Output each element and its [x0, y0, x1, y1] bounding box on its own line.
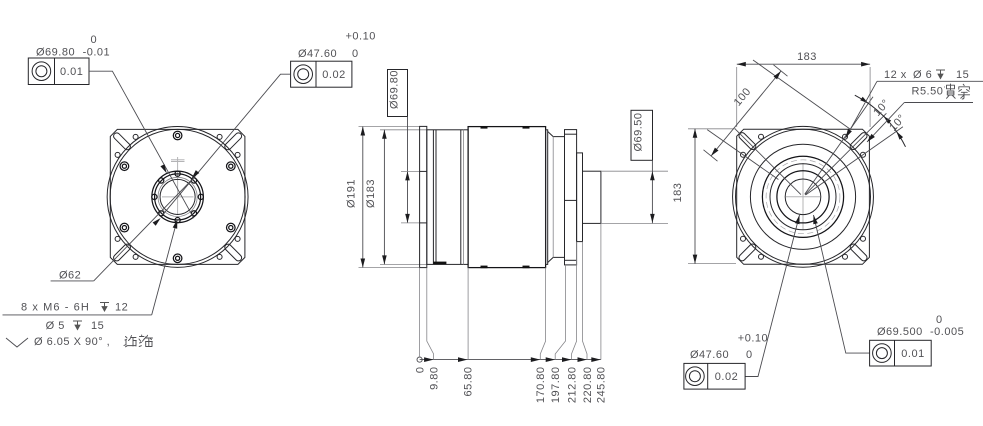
svg-text:0.01: 0.01	[60, 66, 83, 78]
svg-text:+0.10: +0.10	[346, 31, 376, 43]
svg-text:183: 183	[672, 183, 684, 203]
svg-text:Ø 6: Ø 6	[913, 69, 932, 81]
svg-text:8 x M6 - 6H: 8 x M6 - 6H	[21, 302, 90, 314]
svg-text:0.02: 0.02	[715, 371, 738, 383]
svg-text:220.80: 220.80	[582, 367, 594, 404]
svg-text:Ø69.80: Ø69.80	[36, 47, 75, 59]
svg-text:Ø69.500: Ø69.500	[877, 326, 923, 338]
svg-text:+0.10: +0.10	[738, 332, 768, 344]
svg-text:0: 0	[746, 349, 753, 361]
svg-text:Ø191: Ø191	[346, 179, 358, 208]
svg-text:R5.50: R5.50	[912, 86, 944, 98]
svg-text:15: 15	[91, 320, 104, 332]
svg-text:170.80: 170.80	[535, 367, 547, 404]
svg-text:197.80: 197.80	[550, 367, 562, 404]
svg-text:212.80: 212.80	[566, 367, 578, 404]
svg-text:245.80: 245.80	[596, 367, 608, 404]
svg-text:0: 0	[414, 367, 426, 374]
svg-text:0.02: 0.02	[322, 69, 345, 81]
svg-text:Ø62: Ø62	[59, 269, 81, 281]
svg-text:Ø47.60: Ø47.60	[690, 349, 729, 361]
svg-text:-0.01: -0.01	[83, 47, 111, 59]
svg-text:Ø69.80: Ø69.80	[389, 70, 401, 109]
svg-text:15: 15	[956, 69, 969, 81]
svg-text:-0.005: -0.005	[930, 326, 964, 338]
svg-text:0: 0	[352, 48, 359, 60]
svg-text:12 x: 12 x	[884, 69, 907, 81]
svg-text:Ø 5: Ø 5	[46, 320, 65, 332]
svg-text:Ø 6.05 X 90° ,: Ø 6.05 X 90° ,	[34, 336, 110, 348]
svg-text:0: 0	[936, 314, 943, 326]
svg-text:0: 0	[91, 34, 98, 46]
svg-text:65.80: 65.80	[462, 367, 474, 397]
svg-text:9.80: 9.80	[428, 367, 440, 390]
svg-text:Ø47.60: Ø47.60	[298, 48, 337, 60]
svg-text:Ø69.50: Ø69.50	[633, 112, 645, 151]
svg-text:183: 183	[797, 51, 817, 63]
svg-text:Ø183: Ø183	[365, 179, 377, 208]
svg-text:0.01: 0.01	[901, 348, 924, 360]
svg-text:12: 12	[115, 302, 128, 314]
